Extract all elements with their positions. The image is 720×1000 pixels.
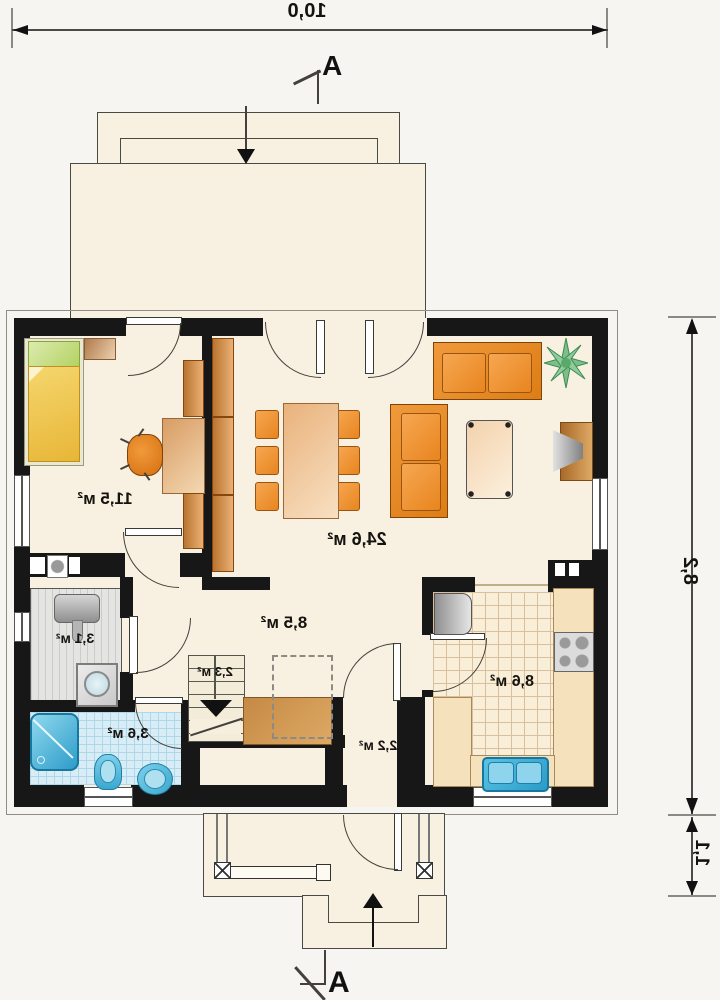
porch-post-line (428, 814, 430, 866)
vent-cutout (569, 563, 579, 576)
porch-post-line (226, 814, 228, 866)
utility-area-label: 3,1 м² (30, 630, 120, 646)
section-letter-bottom: A (328, 966, 350, 1000)
dining-chair (255, 446, 279, 475)
section-line-top (317, 70, 319, 104)
toilet-bowl (100, 760, 116, 783)
stove (554, 632, 594, 672)
living-area-label: 24,6 м² (312, 529, 402, 550)
wall-niche (30, 557, 45, 574)
dining-chair (336, 482, 360, 511)
hall-area-label: 8,5 м² (239, 613, 329, 633)
sofa-cushion (488, 353, 532, 393)
dim-tick (668, 814, 716, 816)
dim-label-height: 8,2 (679, 539, 701, 603)
dim-arrow-down (686, 798, 698, 814)
sink-basin-left (488, 762, 514, 784)
sofa-cushion (442, 353, 486, 393)
desk-chair (127, 434, 163, 476)
water-heater (54, 594, 100, 623)
dim-arrow-up (686, 318, 698, 334)
wall (427, 318, 608, 336)
kitchen-area-label: 8,6 м² (467, 673, 557, 691)
porch-post-line (418, 814, 420, 866)
shower-drain (37, 756, 45, 764)
bedroom-wardrobe (183, 360, 204, 417)
dining-cabinet (212, 417, 234, 495)
vent-cutout (555, 563, 565, 576)
sofa-cushion (401, 463, 441, 511)
floor-plan-canvas: 10,0 A (0, 0, 720, 1000)
porch-bench-end (316, 864, 331, 881)
sink-basin (144, 769, 166, 789)
terrace (70, 163, 426, 320)
terrace-arrow-head (237, 149, 255, 164)
stairs-area-label: 2,3 м² (170, 664, 260, 679)
plant (544, 338, 588, 388)
entry-arrow-line (372, 904, 374, 947)
bedside-table (84, 338, 116, 360)
dining-table (283, 403, 339, 519)
dining-chair (336, 410, 360, 439)
wall (14, 785, 84, 807)
fridge (434, 593, 472, 635)
dining-cabinet (212, 338, 234, 417)
terrace-arrow-line (245, 106, 247, 152)
blanket-fold (29, 367, 44, 382)
desk (162, 418, 205, 494)
entry-arrow-head (363, 893, 383, 908)
sofa-vertical (390, 404, 448, 518)
wall-kitchen-left (422, 577, 433, 635)
section-letter-top: A (322, 50, 342, 82)
vestibule-area-label: 2,2 м² (333, 737, 423, 753)
wall (397, 785, 473, 807)
bed-pillow (28, 341, 80, 369)
sofa-horizontal (433, 342, 542, 400)
stairs-arrow (200, 700, 232, 717)
wall-utility-right (120, 577, 133, 618)
dim-line-top (12, 29, 608, 31)
bathroom-window (84, 787, 133, 807)
kitchen-counter-left (433, 697, 472, 787)
dim-arrow-right (592, 25, 607, 35)
kitchen-counter-right (553, 588, 594, 787)
dim-tick (668, 895, 716, 897)
dining-chair (255, 410, 279, 439)
bedroom-window (14, 475, 30, 547)
porch-column (214, 862, 231, 879)
wall (180, 318, 263, 336)
wall-kitchen-left (422, 690, 433, 697)
dim-arrow-left (13, 25, 28, 35)
living-window (592, 478, 608, 550)
porch-column (416, 862, 433, 879)
porch-bench (230, 866, 318, 879)
porch (203, 813, 445, 897)
dim-label-width: 10,0 (262, 0, 352, 23)
porch-post-line (216, 814, 218, 866)
utility-window (14, 612, 30, 642)
wall (592, 318, 608, 478)
dining-chair (336, 446, 360, 475)
wall (14, 640, 30, 807)
wall-hall-top (212, 577, 270, 590)
bedroom-wardrobe (183, 493, 204, 549)
wall (14, 318, 126, 336)
vent-fan-symbol (47, 555, 68, 578)
washer-drum (84, 671, 110, 697)
wall (592, 548, 608, 807)
bathroom-area-label: 3,6 м² (83, 725, 173, 742)
wardrobe-dashed-outline (272, 655, 333, 739)
dim-label-porch: 1,1 (692, 823, 712, 883)
coffee-table (466, 420, 513, 499)
dining-cabinet (212, 495, 234, 572)
dim-arrow-down (686, 881, 698, 895)
kitchen-opening-line (475, 584, 548, 586)
wall-stub (180, 553, 212, 577)
sofa-cushion (401, 413, 441, 461)
bedroom-area-label: 11,5 м² (60, 489, 150, 509)
wall-niche (69, 557, 80, 574)
section-line-bottom (324, 950, 326, 984)
dining-chair (255, 482, 279, 511)
sink-basin-right (516, 762, 542, 784)
